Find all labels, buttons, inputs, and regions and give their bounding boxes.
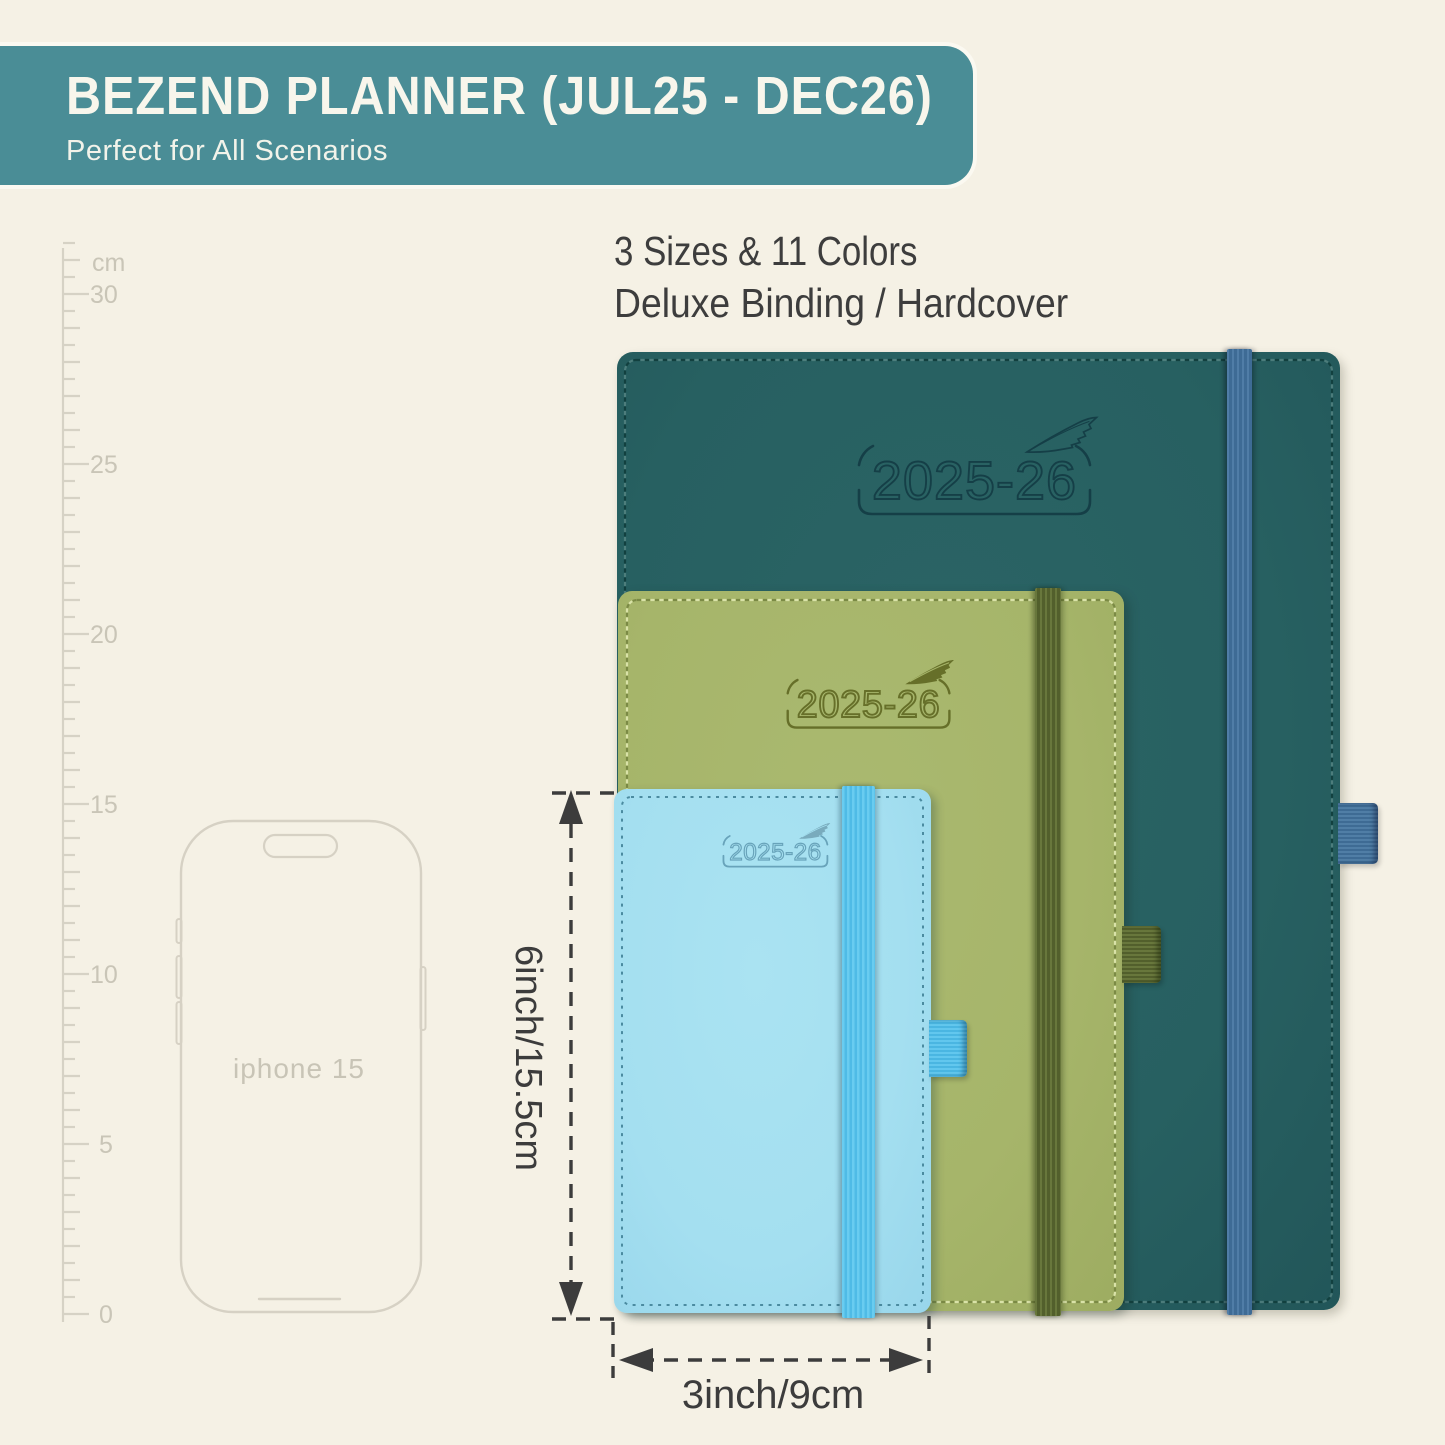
svg-text:6inch/15.5cm: 6inch/15.5cm (507, 945, 549, 1171)
svg-text:3inch/9cm: 3inch/9cm (682, 1373, 864, 1417)
